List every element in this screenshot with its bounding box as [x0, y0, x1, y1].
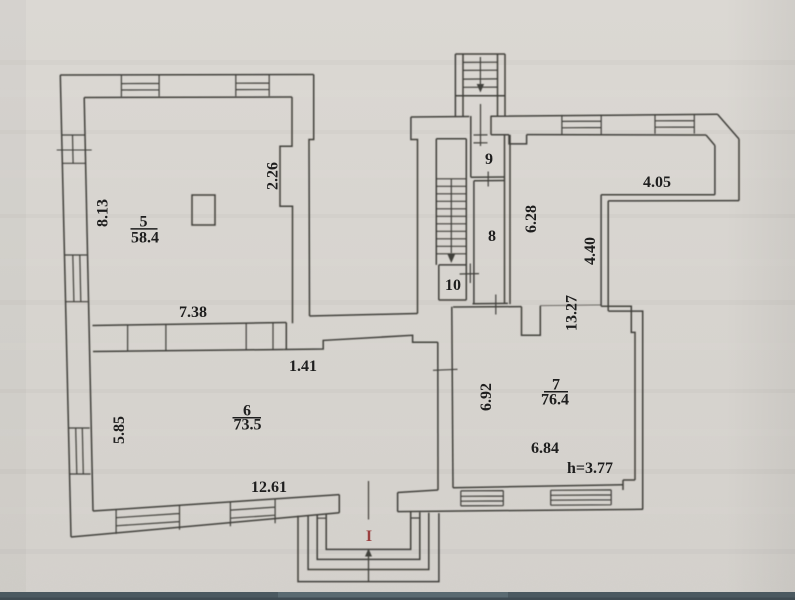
svg-text:h=3.77: h=3.77	[567, 460, 613, 477]
svg-text:6.92: 6.92	[478, 383, 495, 411]
svg-text:10: 10	[445, 277, 461, 294]
svg-text:5.85: 5.85	[111, 416, 128, 444]
svg-text:76.4: 76.4	[541, 391, 569, 408]
svg-text:6.84: 6.84	[531, 440, 559, 457]
svg-text:8: 8	[488, 228, 496, 245]
svg-text:5: 5	[140, 214, 148, 231]
svg-text:7.38: 7.38	[179, 304, 207, 321]
svg-text:4.05: 4.05	[643, 174, 671, 191]
svg-text:13.27: 13.27	[564, 295, 581, 331]
svg-text:6.28: 6.28	[523, 205, 540, 233]
svg-text:12.61: 12.61	[251, 479, 287, 496]
svg-text:I: I	[366, 528, 372, 545]
svg-text:8.13: 8.13	[95, 199, 112, 227]
svg-text:73.5: 73.5	[234, 416, 262, 433]
svg-text:58.4: 58.4	[131, 229, 159, 246]
svg-text:2.26: 2.26	[265, 162, 282, 190]
svg-text:4.40: 4.40	[582, 237, 599, 265]
svg-text:9: 9	[485, 151, 493, 168]
svg-text:1.41: 1.41	[289, 358, 317, 375]
